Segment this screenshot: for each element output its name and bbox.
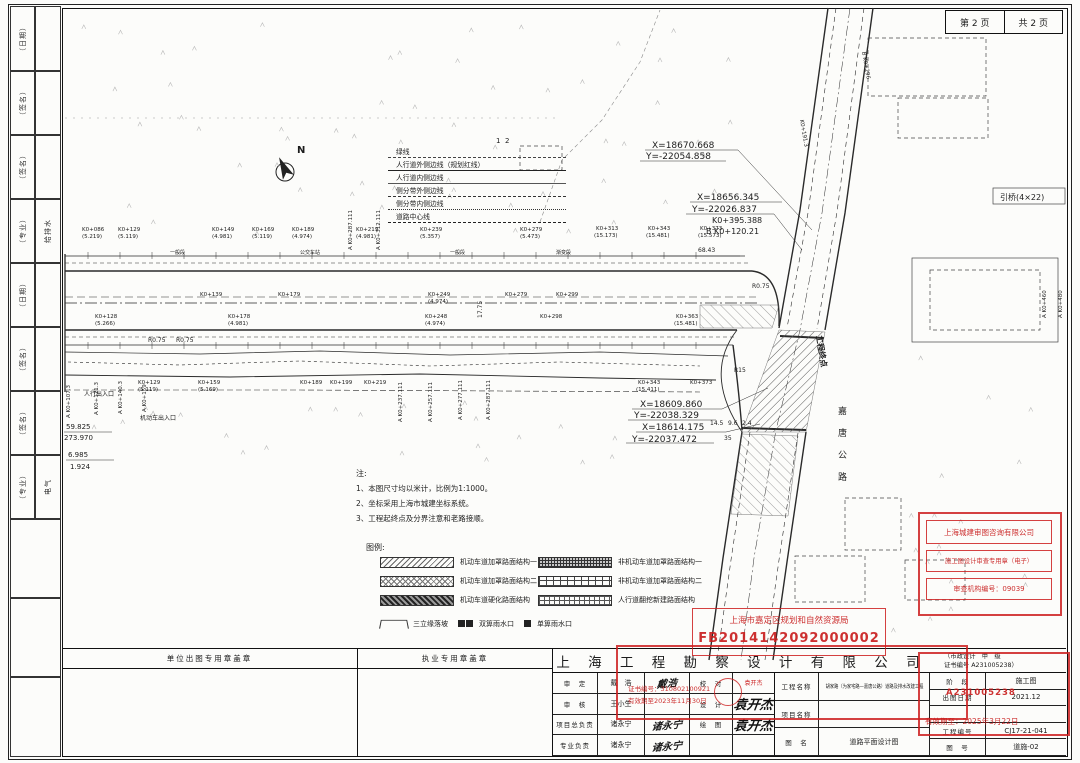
titleblock-cell: 诸永宁	[598, 735, 645, 756]
plan-label: (15.481)	[674, 321, 698, 327]
plan-label: Y=-22026.837	[691, 205, 757, 215]
plan-label: 1	[496, 137, 500, 145]
page-total: 共 2 页	[1004, 11, 1063, 33]
plan-label: 一般段	[170, 249, 185, 256]
plan-label: K0+149	[212, 227, 235, 233]
legend-item: 非机动车道加罩路面结构二	[538, 575, 702, 587]
plan-label: 路	[838, 471, 847, 483]
titleblock-cell: 图 号	[930, 739, 986, 756]
legend-swatch	[538, 595, 612, 606]
line-type-row: 道路中心线	[388, 210, 566, 223]
line-type-row: 人行道外侧边线（规划红线）	[388, 158, 566, 171]
plan-label: Y=-22038.329	[633, 411, 699, 421]
legend-extras-row: 三立缘落坡双箅雨水口单箅雨水口	[380, 618, 572, 630]
plan-label: 6.985	[68, 451, 88, 459]
review-stamp-box: 上海城建审图咨询有限公司 施工图设计审查专用章（电子） 审查机构编号：09039	[918, 512, 1062, 616]
plan-label: K0+299	[556, 292, 579, 298]
titleblock-cell: 诸永宁	[645, 735, 690, 756]
line-type-row: 侧分带内侧边线	[388, 197, 566, 210]
notes-block: 注: 1、本图尺寸均以米计，比例为1:1000。2、坐标采用上海市城建坐标系统。…	[356, 466, 616, 526]
plan-label: R15	[734, 367, 746, 374]
plan-label: K0+169	[252, 227, 275, 233]
planning-bureau-stamp: 上海市嘉定区规划和自然资源局 FB2014142092000002	[692, 608, 886, 656]
plan-label: (15.481)	[646, 233, 670, 239]
legend-item: 机动车道硬化路面结构	[380, 594, 530, 606]
titleblock-cell	[690, 735, 733, 756]
plan-label: K0+189	[292, 227, 315, 233]
plan-label: K0+279	[520, 227, 543, 233]
plan-label: (5.473)	[520, 234, 540, 240]
plan-label: (5.357)	[420, 234, 440, 240]
plan-label: 17.75	[477, 301, 484, 318]
plan-label: K0+343	[638, 380, 661, 386]
plan-label: A K0+460	[1042, 290, 1048, 318]
unit-seal-area-label: 单位出图专用章盖章	[62, 649, 357, 669]
plan-label: R0.75	[176, 337, 194, 344]
review-org-number: 审查机构编号：09039	[927, 584, 1051, 594]
plan-label: (15.411)	[636, 387, 660, 393]
plan-label: Y=-22054.858	[645, 152, 711, 162]
plan-label: K0+395.388	[712, 216, 762, 225]
single-inlet-icon	[524, 620, 532, 629]
plan-label: B K0+296	[860, 51, 871, 80]
plan-label: K0+313	[596, 226, 619, 232]
plan-label: (15.573)	[698, 233, 722, 239]
plan-label: 59.825	[66, 423, 91, 431]
legend-item: 机动车道加罩路面结构一	[380, 556, 537, 568]
plan-label: (5.119)	[252, 234, 272, 240]
plan-label: A K0+237.111	[398, 382, 404, 422]
plan-label: A K0+121.3	[94, 382, 100, 415]
plan-label: 机动车出入口	[140, 414, 176, 422]
plan-label: 公	[838, 450, 847, 461]
line-type-row: 绿线	[388, 145, 566, 158]
plan-label: K0+189	[300, 380, 323, 386]
plan-label: (15.173)	[594, 233, 618, 239]
line-type-row: 人行道内侧边线	[388, 171, 566, 184]
plan-label: A K0+480	[1058, 290, 1064, 318]
plan-label: K0+373	[690, 380, 713, 386]
plan-label: (5.266)	[95, 321, 115, 327]
page-current: 第 2 页	[946, 11, 1004, 33]
plan-label: A K0+287.111	[486, 380, 492, 420]
plan-label: K0+199	[330, 380, 353, 386]
review-seal-type: 施工图设计审查专用章（电子）	[927, 556, 1051, 565]
plan-label: K0+373	[700, 226, 723, 232]
plan-label: K0+179	[278, 292, 301, 298]
plan-label: (4.974)	[428, 299, 448, 305]
registration-stamp-box: 证书编号：310802100921 有效期至2023年11月30日	[616, 645, 968, 720]
plan-label: K0+343	[648, 226, 671, 232]
line-type-legend: 绿线人行道外侧边线（规划红线）人行道内侧边线侧分带外侧边线侧分带内侧边线道路中心…	[388, 145, 566, 223]
plan-label: R0.75	[752, 283, 770, 290]
legend-swatch	[380, 576, 454, 587]
plan-label: A K0+312.111	[376, 210, 382, 250]
plan-label: K0+249	[428, 292, 451, 298]
plan-label: (5.169)	[198, 387, 218, 393]
slope-icon	[379, 620, 409, 629]
plan-label: (5.119)	[138, 387, 158, 393]
titleblock-cell: 审 定	[553, 673, 598, 694]
plan-label: N	[297, 145, 305, 156]
legend-item: 单箅雨水口	[524, 619, 572, 629]
notes-items: 1、本图尺寸均以米计，比例为1:1000。2、坐标采用上海市城建坐标系统。3、工…	[356, 481, 616, 526]
plan-label: A K0+287.111	[348, 210, 354, 250]
personal-seal-circle	[714, 678, 742, 706]
plan-label: 14.5	[710, 420, 724, 427]
practice-seal-area-label: 执业专用章盖章	[358, 649, 552, 669]
plan-label: 2.4	[742, 420, 752, 427]
plan-label: K0+363	[676, 314, 699, 320]
plan-label: X=18609.860	[640, 400, 703, 410]
plan-label: Y=-22037.472	[631, 435, 697, 445]
legend-swatch	[538, 557, 612, 568]
validity-date: 有效期至：2025年3月22日	[925, 716, 1018, 727]
page-number-box: 第 2 页 共 2 页	[945, 10, 1063, 34]
plan-label: 唐	[838, 427, 847, 439]
legend-item: 人行道翻挖新建路面结构	[538, 594, 695, 606]
legend-item: 三立缘落坡	[380, 619, 448, 629]
plan-label: 1.924	[70, 463, 91, 471]
titleblock-cell: 道施-02	[986, 739, 1066, 756]
planning-bureau-number: FB2014142092000002	[693, 631, 885, 646]
note-item: 1、本图尺寸均以米计，比例为1:1000。	[356, 481, 616, 496]
note-item: 3、工程起终点及分界注意和老路接顺。	[356, 511, 616, 526]
plan-label: 68.43	[698, 247, 715, 254]
legend-item: 非机动车道加罩路面结构一	[538, 556, 702, 568]
plan-label: 渐变段	[556, 249, 571, 256]
legend-swatch	[380, 595, 454, 606]
double-inlet-icon	[458, 620, 474, 629]
plan-label: (4.981)	[212, 234, 232, 240]
plan-label: (5.119)	[118, 234, 138, 240]
notes-title: 注:	[356, 466, 616, 481]
plan-label: K0+178	[228, 314, 251, 320]
titleblock-cell: 道路平面设计图	[819, 728, 930, 756]
plan-label: 一般段	[450, 249, 465, 256]
plan-label: K0+191.3	[798, 119, 809, 148]
plan-label: A K0+159	[142, 384, 148, 412]
plan-label: K0+248	[425, 314, 448, 320]
plan-label: A K0+257.111	[428, 382, 434, 422]
reg-cert-number: 证书编号：310802100921	[628, 683, 710, 693]
titleblock-cell	[733, 735, 775, 756]
plan-label: X=18614.175	[642, 423, 704, 433]
plan-label: 273.970	[64, 434, 93, 442]
legend-swatch	[380, 557, 454, 568]
legend-item: 机动车道加罩路面结构二	[380, 575, 537, 587]
plan-label: K0+086	[82, 227, 105, 233]
plan-label: K0+128	[95, 314, 118, 320]
drawing-sheet: （日期）（签名）（签名）（专业）给排水（日期）（签名）（签名）（专业）电气 X=…	[0, 0, 1080, 763]
reg-validity: 有效期至2023年11月30日	[628, 695, 707, 705]
plan-label: X=18656.345	[697, 193, 759, 203]
plan-label: K0+159	[198, 380, 221, 386]
legend-item: 双箅雨水口	[458, 619, 514, 629]
plan-label: X=18670.668	[652, 141, 715, 151]
planning-bureau-name: 上海市嘉定区规划和自然资源局	[693, 614, 885, 626]
plan-label: K0+279	[505, 292, 528, 298]
line-type-row: 侧分带外侧边线	[388, 184, 566, 197]
titleblock-cell: 审 核	[553, 694, 598, 715]
plan-label: (4.981)	[228, 321, 248, 327]
plan-label: 35	[724, 435, 732, 442]
plan-label: A K0+140.3	[118, 381, 124, 414]
plan-label: A K0+277.111	[458, 380, 464, 420]
plan-labels: X=18670.668Y=-22054.858X=18656.345Y=-220…	[64, 51, 1064, 483]
titleblock-cell: 图 名	[775, 728, 819, 756]
plan-label: 引桥(4×22)	[1000, 192, 1044, 202]
plan-label: K0+129	[118, 227, 141, 233]
plan-label: (4.974)	[292, 234, 312, 240]
plan-label: 9.6	[728, 420, 738, 427]
plan-label: K0+139	[200, 292, 223, 298]
titleblock-cell: 专业负责	[553, 735, 598, 756]
plan-label: K0+219	[364, 380, 387, 386]
plan-label: 2	[505, 137, 509, 145]
validity-stamp-box: A231005238 有效期至：2025年3月22日	[918, 652, 1070, 736]
plan-label: (4.981)	[356, 234, 376, 240]
validity-cert-number: A231005238	[946, 688, 1016, 698]
plan-label: R0.75	[148, 337, 166, 344]
titleblock-cell: 项目总负责	[553, 715, 598, 736]
plan-label: (5.219)	[82, 234, 102, 240]
plan-label: K0+239	[420, 227, 443, 233]
plan-label: A K0+107.3	[66, 385, 72, 418]
plan-label: (4.974)	[425, 321, 445, 327]
legend-swatch	[538, 576, 612, 587]
review-company: 上海城建审图咨询有限公司	[927, 527, 1051, 538]
pavement-legend-title: 图例:	[366, 542, 385, 553]
note-item: 2、坐标采用上海市城建坐标系统。	[356, 496, 616, 511]
plan-label: 公交车站	[300, 249, 320, 256]
plan-label: 嘉	[838, 405, 847, 417]
plan-label: K0+298	[540, 314, 563, 320]
